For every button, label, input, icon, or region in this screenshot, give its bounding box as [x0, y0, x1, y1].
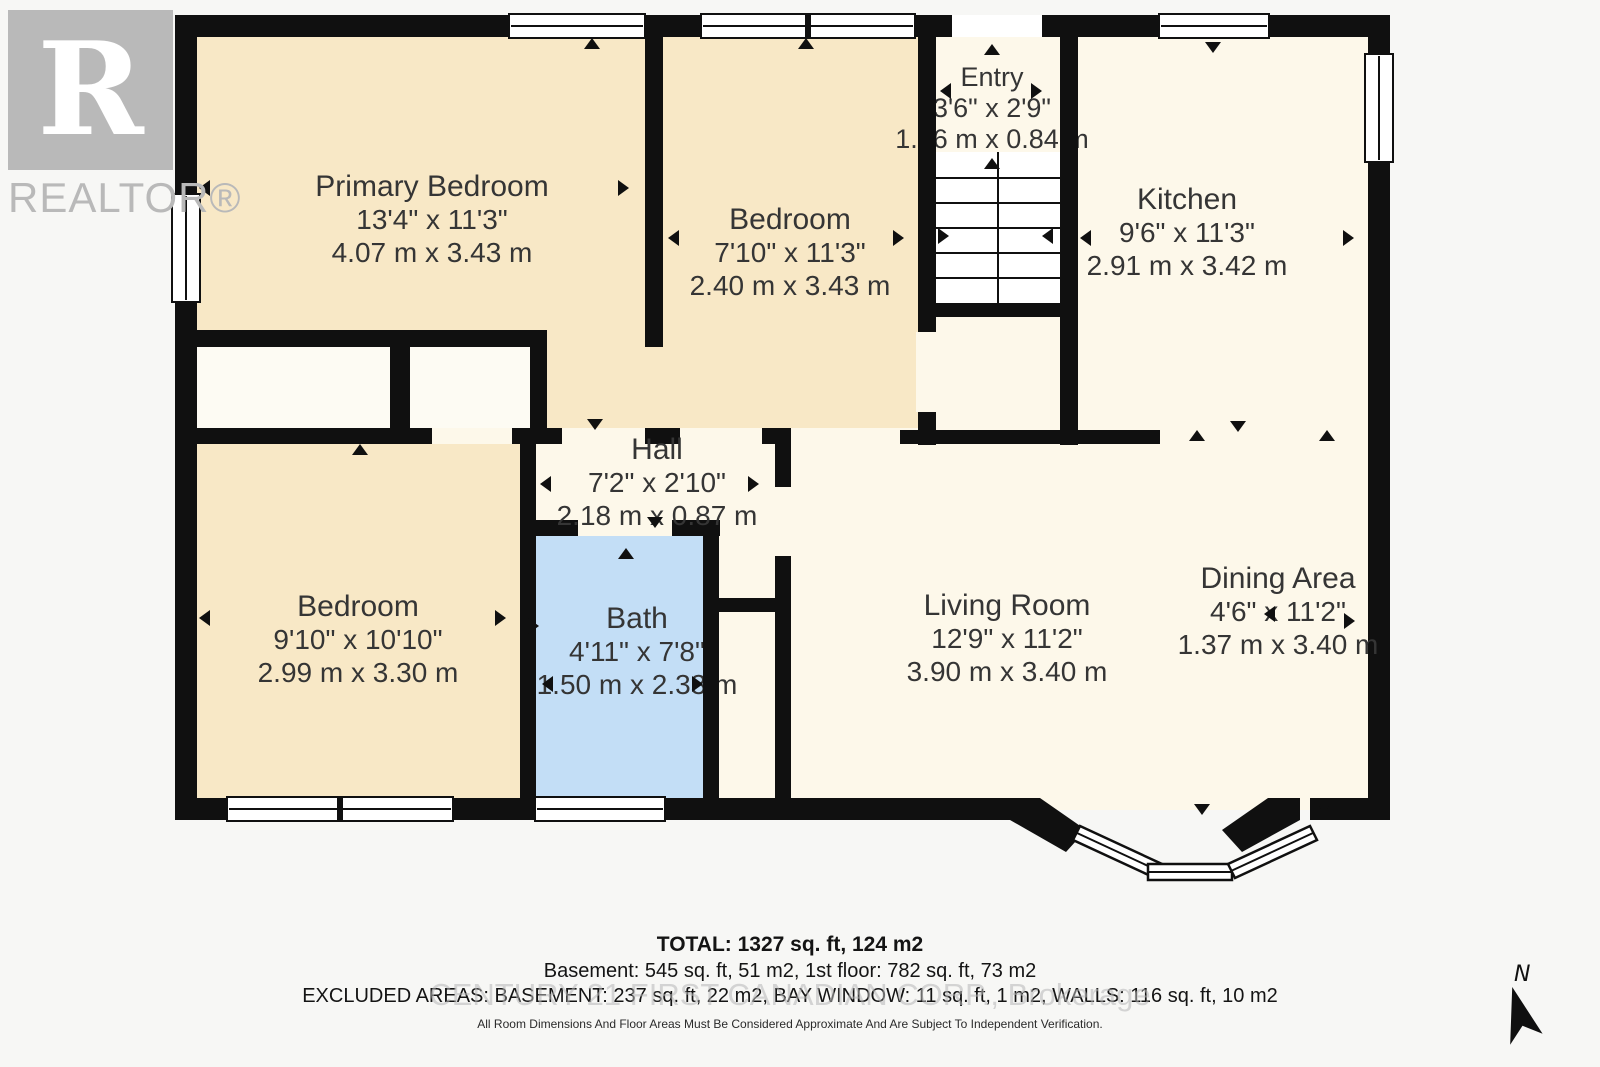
window [226, 796, 454, 822]
dimension-arrow-icon [1344, 613, 1355, 629]
dimension-arrow-icon [798, 38, 814, 49]
dimension-arrow-icon [647, 517, 663, 528]
room-label-entry: Entry 3'6" x 2'9" 1.06 m x 0.84 m [862, 62, 1122, 155]
dimension-arrow-icon [542, 676, 553, 692]
wall [195, 330, 547, 347]
dimension-arrow-icon [528, 618, 539, 634]
window-pane-line [1378, 56, 1380, 160]
window [534, 796, 666, 822]
room-dimensions-metric: 3.90 m x 3.40 m [857, 655, 1157, 688]
dimension-arrow-icon [587, 419, 603, 430]
bay-window [980, 790, 1330, 895]
dimension-arrow-icon [618, 180, 629, 196]
dimension-arrow-icon [1031, 83, 1042, 99]
room-label-bedroom-left: Bedroom 9'10" x 10'10" 2.99 m x 3.30 m [208, 590, 508, 689]
room-dimensions-metric: 2.40 m x 3.43 m [640, 269, 940, 302]
room-label-living-room: Living Room 12'9" x 11'2" 3.90 m x 3.40 … [857, 589, 1157, 688]
room-label-primary-bedroom: Primary Bedroom 13'4" x 11'3" 4.07 m x 3… [232, 170, 632, 269]
wall [175, 428, 432, 444]
wall [775, 556, 791, 798]
window-mullion [805, 13, 811, 39]
entry-door-opening [952, 15, 1042, 37]
room-dimensions-imperial: 7'2" x 2'10" [507, 466, 807, 499]
room-name: Kitchen [1037, 183, 1337, 216]
wall [920, 303, 1078, 317]
bay-wall-stub [1010, 798, 1086, 852]
dimension-arrow-icon [1343, 230, 1354, 246]
dimension-arrow-icon [1194, 804, 1210, 815]
stairs-up-arrow-icon [984, 158, 1000, 169]
room-name: Dining Area [1128, 562, 1428, 595]
north-arrow-icon [1496, 984, 1544, 1046]
room-dimensions-metric: 1.06 m x 0.84 m [862, 124, 1122, 155]
window [1364, 53, 1394, 163]
wall [703, 536, 719, 798]
dimension-arrow-icon [893, 230, 904, 246]
brokerage-watermark: CENTURY 21 FIRST CANADIAN CORP., Brokera… [190, 977, 1390, 1013]
room-name: Bedroom [208, 590, 508, 623]
wall [900, 430, 1160, 444]
dimension-arrow-icon [940, 83, 951, 99]
dimension-arrow-icon [199, 610, 210, 626]
room-dimensions-imperial: 3'6" x 2'9" [862, 93, 1122, 124]
wall [530, 330, 547, 444]
dimension-arrow-icon [540, 476, 551, 492]
stair-center-rail [997, 152, 999, 303]
closet [410, 347, 530, 428]
window-pane-line [511, 25, 643, 27]
door-opening [916, 332, 938, 412]
dimension-arrow-icon [618, 548, 634, 559]
room-dimensions-metric: 1.37 m x 3.40 m [1128, 628, 1428, 661]
total-area-text: TOTAL: 1327 sq. ft, 124 m2 [190, 933, 1390, 957]
area-summary: TOTAL: 1327 sq. ft, 124 m2 Basement: 545… [190, 933, 1390, 1043]
window [700, 13, 916, 39]
realtor-logo-text: REALTOR® [8, 174, 241, 222]
window-pane-line [537, 808, 663, 810]
room-dimensions-imperial: 4'6" x 11'2" [1128, 595, 1428, 628]
dimension-arrow-icon [1205, 42, 1221, 53]
room-dimensions-imperial: 13'4" x 11'3" [232, 203, 632, 236]
room-label-dining-area: Dining Area 4'6" x 11'2" 1.37 m x 3.40 m [1128, 562, 1428, 661]
dimension-arrow-icon [352, 444, 368, 455]
window-pane-line [1077, 833, 1159, 871]
disclaimer-text: All Room Dimensions And Floor Areas Must… [190, 1017, 1390, 1031]
dimension-arrow-icon [1230, 421, 1246, 432]
room-name: Entry [862, 62, 1122, 93]
room-name: Primary Bedroom [232, 170, 632, 203]
dimension-arrow-icon [1189, 430, 1205, 441]
room-dimensions-imperial: 9'10" x 10'10" [208, 623, 508, 656]
window-pane-line [1161, 25, 1267, 27]
dimension-arrow-icon [938, 228, 949, 244]
room-dimensions-metric: 2.99 m x 3.30 m [208, 656, 508, 689]
dimension-arrow-icon [984, 44, 1000, 55]
room-name: Living Room [857, 589, 1157, 622]
room-dimensions-metric: 2.91 m x 3.42 m [1037, 249, 1337, 282]
dimension-arrow-icon [1319, 430, 1335, 441]
dimension-arrow-icon [1316, 802, 1332, 813]
dimension-arrow-icon [1264, 606, 1275, 622]
dimension-arrow-icon [1042, 228, 1053, 244]
dimension-arrow-icon [692, 676, 703, 692]
window [508, 13, 646, 39]
window [1158, 13, 1270, 39]
closet [197, 347, 390, 428]
room-dimensions-imperial: 12'9" x 11'2" [857, 622, 1157, 655]
logo-letter: R [37, 26, 143, 154]
realtor-logo: R REALTOR® [8, 10, 241, 222]
room-dimensions-metric: 4.07 m x 3.43 m [232, 236, 632, 269]
dimension-arrow-icon [668, 230, 679, 246]
dimension-arrow-icon [1080, 230, 1091, 246]
room-label-bedroom-top: Bedroom 7'10" x 11'3" 2.40 m x 3.43 m [640, 203, 940, 302]
realtor-r-icon: R [8, 10, 173, 170]
floor-plan-page: R REALTOR® [0, 0, 1600, 1067]
room-name: Hall [507, 433, 807, 466]
dimension-arrow-icon [495, 610, 506, 626]
dimension-arrow-icon [748, 476, 759, 492]
wall [390, 330, 410, 444]
dimension-arrow-icon [584, 38, 600, 49]
window-mullion [337, 796, 343, 822]
